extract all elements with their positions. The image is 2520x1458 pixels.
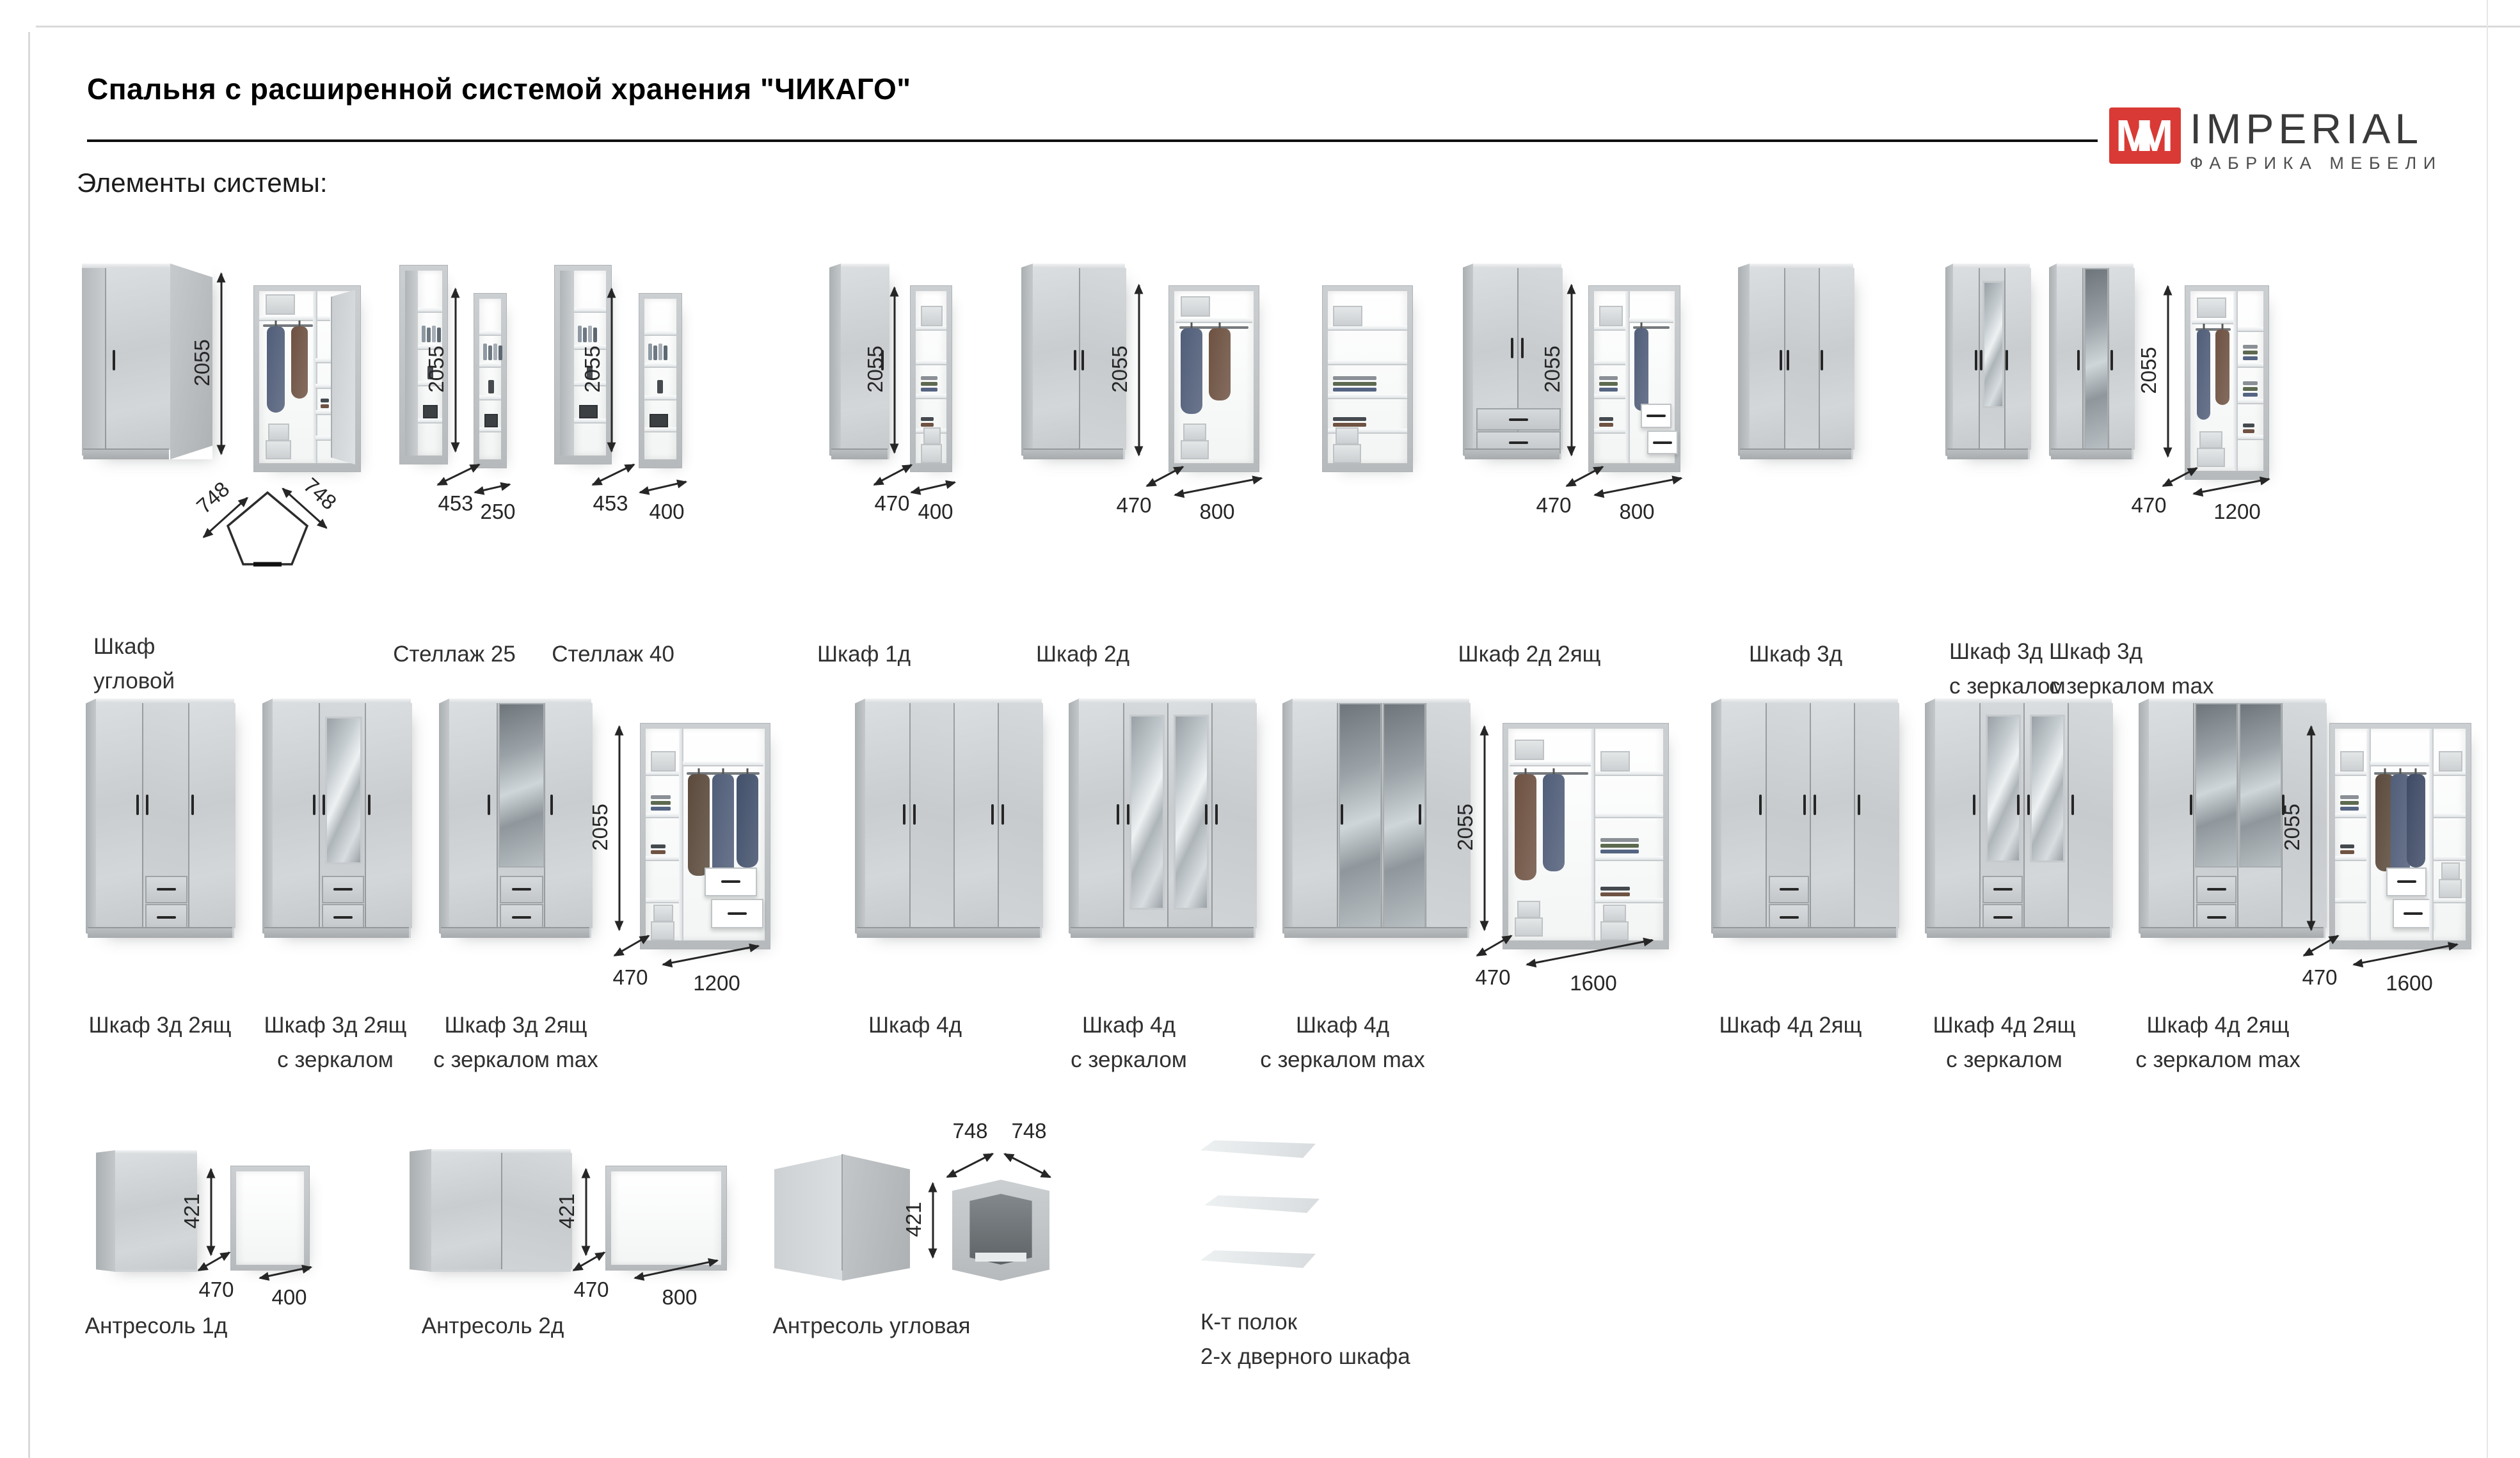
- black-box: [423, 405, 438, 418]
- item-label-line: Шкаф 4д 2ящ: [1719, 1008, 1862, 1043]
- open-drawer: [1641, 404, 1671, 428]
- top-shelf: [259, 316, 330, 321]
- door-handle: [1780, 350, 1782, 370]
- door-handle: [2006, 350, 2008, 370]
- folded-clothes: [2243, 351, 2258, 354]
- door-handle: [2077, 350, 2080, 370]
- wardrobe-interior: [2335, 729, 2466, 940]
- wardrobe-door: [909, 703, 955, 928]
- wardrobe-door: [1293, 703, 1337, 928]
- drawer-handle: [721, 880, 740, 883]
- dimension-arrow: [946, 1153, 993, 1178]
- wardrobe-plinth: [1947, 448, 2028, 459]
- drawer-handle: [512, 888, 531, 891]
- cabinet-side-panel: [410, 1149, 431, 1272]
- item-label: Шкаф 4дс зеркалом: [1071, 1008, 1187, 1078]
- dimension-arrow: [611, 289, 613, 452]
- wardrobe-door: [2004, 268, 2031, 450]
- hanging-coat: [688, 774, 710, 876]
- hanging-coat: [712, 774, 734, 880]
- item-label-line: с зеркалом: [1071, 1043, 1187, 1077]
- shelf: [574, 418, 606, 424]
- door-handle: [1973, 795, 1975, 815]
- door-handle: [1975, 350, 1977, 370]
- storage-box: [1599, 306, 1623, 326]
- door-handle: [1858, 795, 1860, 815]
- folded-clothes: [1599, 376, 1618, 380]
- item-label-line: с зеркалом max: [2135, 1043, 2301, 1077]
- wardrobe-top: [1293, 699, 1469, 703]
- folded-clothes: [921, 423, 934, 427]
- item-label-line: К-т полок: [1200, 1305, 1410, 1340]
- storage-box: [2439, 751, 2462, 772]
- wardrobe-door: [365, 703, 412, 928]
- folded-clothes: [1333, 382, 1376, 386]
- dimension-arrow: [221, 274, 223, 454]
- wardrobe-top: [865, 699, 1042, 703]
- door-handle: [1074, 350, 1076, 370]
- dimension-label: 2055: [1540, 345, 1565, 392]
- top-shelf: [1176, 318, 1252, 323]
- wardrobe-door: [273, 703, 319, 928]
- shelf: [1328, 394, 1407, 399]
- drawer-front: [1982, 876, 2023, 903]
- open-wardrobe-shkaf2d-shelves: [1322, 285, 1413, 472]
- drawer-handle: [2404, 912, 2423, 915]
- item-label-line: Антресоль 2д: [422, 1309, 564, 1343]
- dimension-label: 2055: [2280, 804, 2304, 850]
- books: [578, 326, 582, 342]
- item-label-line: Шкаф 4д: [868, 1008, 962, 1043]
- closed-wardrobe-shkaf3d2yzmax: [439, 699, 591, 938]
- drawer-handle: [2207, 916, 2226, 919]
- dimension-arrow: [1595, 477, 1682, 496]
- item-label-line: Шкаф 3д: [1749, 637, 1842, 672]
- dimension-label: 1200: [693, 971, 740, 995]
- shelf: [1595, 898, 1663, 903]
- wardrobe-side-panel: [1945, 264, 1953, 459]
- wardrobe-door: [1211, 703, 1257, 928]
- cabinet-side-panel: [96, 1150, 115, 1272]
- drawer-handle: [333, 888, 353, 891]
- shelf: [2335, 771, 2369, 776]
- item-label: Шкаф 1д: [817, 637, 911, 672]
- page-edge-right: [2487, 0, 2488, 1458]
- folded-clothes: [1599, 382, 1618, 386]
- wardrobe-interior: [479, 299, 501, 459]
- dimension-label: 2055: [580, 345, 605, 392]
- vertical-divider: [2233, 291, 2238, 471]
- black-box: [579, 405, 598, 418]
- hanging-coat: [2197, 329, 2210, 420]
- wardrobe-top: [841, 264, 889, 268]
- dimension-arrow: [911, 481, 955, 493]
- item-label-line: Шкаф 4д 2ящ: [2135, 1008, 2301, 1043]
- item-label: К-т полок2-х дверного шкафа: [1200, 1305, 1410, 1375]
- closed-wardrobe-shkaf4dz: [1069, 699, 1256, 938]
- dimension-arrow: [2167, 287, 2169, 457]
- decor-bottle: [657, 380, 663, 393]
- dimension-arrow: [455, 289, 457, 452]
- folded-clothes: [2340, 807, 2359, 811]
- door-handle: [1803, 795, 1806, 815]
- shelf: [1594, 394, 1628, 399]
- storage-box: [266, 294, 295, 315]
- shelf: [646, 813, 682, 818]
- corner-left-panel: [82, 264, 105, 459]
- folded-clothes: [1600, 887, 1630, 891]
- top-shelf: [1510, 761, 1592, 766]
- shelf: [644, 427, 676, 432]
- item-label: Шкаф 3д: [1749, 637, 1842, 672]
- closed-wardrobe-shkaf3d: [1738, 264, 1853, 459]
- dimension-arrow: [640, 480, 687, 493]
- mirror-door: [1982, 281, 2005, 408]
- item-label-line: Шкаф 1д: [817, 637, 911, 672]
- storage-box: [1183, 424, 1206, 441]
- page-edge-left: [28, 32, 30, 1458]
- wardrobe-plinth: [2051, 448, 2132, 459]
- wardrobe-side-panel: [855, 699, 865, 938]
- brand-tagline: ФАБРИКА МЕБЕЛИ: [2190, 154, 2443, 173]
- storage-box: [1181, 440, 1209, 459]
- dimension-arrow: [1175, 477, 1262, 496]
- dimension-arrow: [1484, 727, 1486, 930]
- wardrobe-plinth: [1071, 927, 1254, 938]
- mirror-door: [1174, 715, 1209, 910]
- item-label: Шкаф 4д: [868, 1008, 962, 1043]
- drawer-handle: [1780, 916, 1799, 919]
- page-title: Спальня с расширенной системой хранения …: [87, 72, 911, 106]
- shelf: [2434, 771, 2466, 776]
- dimension-label: 800: [1199, 500, 1234, 524]
- dimension-arrow: [1566, 466, 1603, 487]
- shelf: [1328, 326, 1407, 331]
- mirror-door: [498, 703, 545, 868]
- books: [483, 344, 487, 360]
- door-handle: [2190, 795, 2192, 815]
- black-box: [650, 414, 668, 427]
- folded-clothes: [1333, 376, 1376, 380]
- mirror-door: [2084, 268, 2109, 452]
- storage-box: [651, 921, 674, 940]
- mirror-door: [2239, 703, 2282, 868]
- dimension-label: 470: [573, 1278, 609, 1302]
- dimension-label: 2055: [1108, 345, 1132, 392]
- storage-box: [2441, 862, 2460, 880]
- storage-box: [1517, 901, 1540, 918]
- section-heading: Элементы системы:: [77, 168, 328, 198]
- vertical-divider: [1625, 291, 1630, 463]
- wardrobe-side-panel: [262, 699, 273, 938]
- item-label: Шкаф 3д 2ящ: [89, 1008, 232, 1043]
- drawer-handle: [157, 888, 176, 891]
- drawer-front: [2196, 876, 2237, 903]
- dimension-label: 470: [1536, 493, 1571, 518]
- wardrobe-door: [96, 703, 142, 928]
- folded-clothes: [1600, 838, 1639, 842]
- wardrobe-top: [1079, 699, 1256, 703]
- wardrobe-top: [1473, 264, 1561, 268]
- folded-clothes: [1333, 423, 1366, 427]
- open-cabinet-antresol2d: [605, 1166, 727, 1271]
- folded-clothes: [321, 399, 329, 402]
- wardrobe-plinth: [1713, 927, 1896, 938]
- wardrobe-plinth: [88, 927, 232, 938]
- vertical-divider: [679, 729, 683, 940]
- hanging-coat: [1515, 774, 1536, 880]
- drawer-handle: [1993, 888, 2013, 891]
- wardrobe-side-panel: [2049, 264, 2057, 459]
- drawer-front: [322, 876, 364, 903]
- door-handle: [323, 795, 325, 815]
- folded-clothes: [921, 382, 937, 386]
- storage-box: [1181, 296, 1210, 317]
- shelf: [2335, 856, 2369, 861]
- door-handle: [1127, 804, 1129, 825]
- wardrobe-top: [273, 699, 411, 703]
- wardrobe-door: [2068, 703, 2113, 928]
- hanging-coat: [1543, 774, 1565, 871]
- wardrobe-interior: [2190, 291, 2263, 471]
- drawer-handle: [1509, 441, 1528, 444]
- open-corner-cabinet-antresolugl: [952, 1180, 1049, 1281]
- item-label: Шкаф 3дс зеркалом max: [2049, 635, 2214, 704]
- cabinet-top: [115, 1150, 197, 1154]
- dimension-label: 1600: [1570, 971, 1616, 995]
- title-divider: [87, 139, 2098, 142]
- dimension-arrow: [1138, 285, 1140, 456]
- door-handle: [1081, 350, 1084, 370]
- door-handle: [1787, 350, 1789, 370]
- open-wardrobe-shkaf2d-rail: [1168, 285, 1259, 472]
- drawer-handle: [1647, 415, 1666, 417]
- dimension-label: 453: [593, 491, 628, 516]
- dimension-label: 470: [1475, 965, 1510, 990]
- open-wardrobe-stellazh40: [639, 293, 682, 468]
- folded-clothes: [321, 404, 329, 408]
- hanging-coat: [737, 774, 758, 868]
- dimension-label: 453: [438, 491, 473, 516]
- dimension-arrow: [2311, 727, 2313, 930]
- door-handle: [136, 795, 139, 815]
- books: [583, 328, 587, 342]
- folded-clothes: [921, 376, 937, 380]
- dimension-label: 400: [271, 1285, 307, 1310]
- dimension-label: 421: [180, 1193, 204, 1228]
- brand-name: IMPERIAL: [2190, 107, 2443, 150]
- item-label-line: Шкаф 4д: [1071, 1008, 1187, 1043]
- door-handle: [1117, 804, 1119, 825]
- books: [427, 328, 431, 342]
- wardrobe-top: [1935, 699, 2112, 703]
- drawer-handle: [2397, 880, 2416, 883]
- storage-box: [921, 306, 943, 326]
- door-handle: [1980, 350, 1982, 370]
- corner-face-left: [774, 1154, 845, 1281]
- shelf: [644, 395, 676, 400]
- storage-box: [1600, 751, 1630, 772]
- books: [498, 345, 502, 360]
- item-label: Шкаф 4д 2ящс зеркалом: [1933, 1008, 2076, 1078]
- wardrobe-door: [1935, 703, 1979, 928]
- door-handle: [1521, 338, 1524, 358]
- door-handle: [113, 350, 115, 370]
- shelf: [2335, 898, 2369, 903]
- dimension-label: 800: [1619, 500, 1654, 524]
- shelf: [418, 308, 442, 313]
- books: [593, 328, 597, 342]
- shelf: [2238, 327, 2263, 332]
- item-label-line: Шкаф: [93, 630, 175, 664]
- item-label: Шкаф 4д 2ящс зеркалом max: [2135, 1008, 2301, 1078]
- storage-box: [1336, 427, 1359, 445]
- open-wardrobe-shkaf2d2y: [1588, 285, 1680, 472]
- shelf: [479, 331, 501, 336]
- door-handle: [368, 795, 371, 815]
- door-handle: [1419, 804, 1421, 825]
- folded-clothes: [2243, 424, 2254, 427]
- item-label-line: Шкаф 3д 2ящ: [264, 1008, 407, 1043]
- dimension-label: 1600: [2386, 971, 2432, 995]
- cabinet-interior: [611, 1171, 721, 1265]
- dimension-label: 400: [918, 500, 953, 524]
- storage-box: [1515, 740, 1544, 760]
- storage-box: [2197, 448, 2225, 467]
- vertical-divider: [1591, 729, 1595, 940]
- door-handle: [1341, 804, 1343, 825]
- shelf: [2434, 813, 2466, 818]
- hanging-coat: [267, 326, 285, 413]
- folded-clothes: [1600, 892, 1630, 896]
- item-label: Антресоль угловая: [772, 1309, 970, 1343]
- shelf: [1595, 813, 1663, 818]
- storage-box: [2439, 879, 2462, 898]
- item-label-line: Антресоль угловая: [772, 1309, 970, 1343]
- folded-clothes: [2340, 850, 2354, 854]
- mirror-door: [2195, 703, 2238, 868]
- cabinet-door: [431, 1153, 501, 1269]
- shelf: [479, 427, 501, 432]
- folded-clothes: [2243, 345, 2258, 349]
- drawer-handle: [1653, 441, 1672, 444]
- wardrobe-side-panel: [439, 699, 449, 938]
- shelf: [646, 771, 682, 776]
- item-label: Шкаф 3д 2ящс зеркалом: [264, 1008, 407, 1078]
- wardrobe-side-panel: [1021, 264, 1033, 459]
- storage-box: [2197, 297, 2226, 318]
- opened-door-panel: [331, 290, 355, 464]
- shelf: [644, 363, 676, 368]
- brand-logo: M M IMPERIAL ФАБРИКА МЕБЕЛИ: [2109, 107, 2443, 173]
- drawer-handle: [333, 916, 353, 919]
- dimension-arrow: [1571, 285, 1573, 456]
- wardrobe-interior: [646, 729, 765, 940]
- item-label: Стеллаж 40: [552, 637, 674, 672]
- wardrobe-plinth: [1465, 448, 1559, 459]
- item-label-line: Шкаф 4д: [1260, 1008, 1425, 1043]
- shelf: [916, 326, 946, 331]
- top-shelf: [2370, 761, 2430, 766]
- folded-clothes: [1599, 388, 1618, 392]
- open-wardrobe-shkaf1d: [910, 285, 952, 472]
- item-label-line: угловой: [93, 664, 175, 699]
- corner-face-right: [842, 1154, 910, 1281]
- closed-corner-cabinet-antresolugl: [774, 1154, 910, 1281]
- drawer-front: [145, 876, 187, 903]
- wardrobe-door: [1750, 268, 1784, 450]
- dimension-label: 2055: [2137, 347, 2161, 393]
- wardrobe-door: [1819, 268, 1854, 450]
- wardrobe-top: [449, 699, 591, 703]
- item-label: Антресоль 1д: [85, 1309, 228, 1343]
- open-wardrobe-shkaf3dzmax: [2185, 285, 2269, 480]
- wardrobe-front: [1935, 699, 2112, 938]
- open-drawer: [711, 899, 763, 928]
- open-wardrobe-shkaf4d2yzmax: [2329, 723, 2471, 949]
- storage-box: [1603, 905, 1626, 922]
- dimension-label: 421: [902, 1201, 926, 1237]
- wardrobe-interior: [1508, 729, 1663, 940]
- wardrobe-interior: [644, 299, 676, 459]
- door-handle: [2071, 795, 2074, 815]
- item-label-line: Шкаф 4д 2ящ: [1933, 1008, 2076, 1043]
- storage-box: [1600, 921, 1629, 940]
- storage-box: [2199, 431, 2222, 448]
- folded-clothes: [1333, 388, 1376, 392]
- shelf: [479, 363, 501, 368]
- books: [658, 344, 662, 360]
- drawer-front: [1476, 408, 1561, 431]
- wardrobe-door: [1854, 703, 1899, 928]
- item-label: Шкаф 2д 2ящ: [1458, 637, 1601, 672]
- item-label-line: Шкаф 2д 2ящ: [1458, 637, 1601, 672]
- wardrobe-interior: [1594, 291, 1675, 463]
- shelf: [916, 394, 946, 399]
- dimension-label: 400: [649, 500, 684, 524]
- drawer-front: [1769, 876, 1809, 903]
- side-panel: [405, 271, 418, 456]
- dimension-arrow: [1004, 1153, 1051, 1178]
- folded-clothes: [1600, 844, 1639, 848]
- door-handle: [1511, 338, 1513, 358]
- door-handle: [913, 804, 916, 825]
- folded-clothes: [921, 417, 934, 421]
- wardrobe-top: [1721, 699, 1898, 703]
- cabinet-top: [431, 1149, 571, 1153]
- wardrobe-door: [1033, 268, 1079, 450]
- books: [588, 326, 592, 342]
- shelf-plate: [1200, 1249, 1316, 1268]
- dimension-label: 748: [1011, 1119, 1046, 1143]
- shelf: [1595, 771, 1663, 776]
- item-label-line: Шкаф 3д: [2049, 635, 2214, 669]
- dimension-label: 2055: [588, 804, 612, 850]
- closed-wardrobe-shkaf4d2y: [1711, 699, 1898, 938]
- hanging-coat: [1181, 328, 1202, 415]
- cabinet-interior: [236, 1171, 304, 1265]
- shelf: [574, 308, 606, 313]
- item-label: Шкаф 4дс зеркалом max: [1260, 1008, 1425, 1078]
- folded-clothes: [2340, 795, 2359, 799]
- item-label-line: с зеркалом: [264, 1043, 407, 1077]
- door-handle: [1821, 350, 1823, 370]
- drawer-front: [500, 876, 543, 903]
- item-label: Шкаф 2д: [1036, 637, 1129, 672]
- wardrobe-plinth: [857, 927, 1040, 938]
- item-label: Шкаф 3дс зеркалом: [1949, 635, 2066, 704]
- shelf: [1328, 360, 1407, 365]
